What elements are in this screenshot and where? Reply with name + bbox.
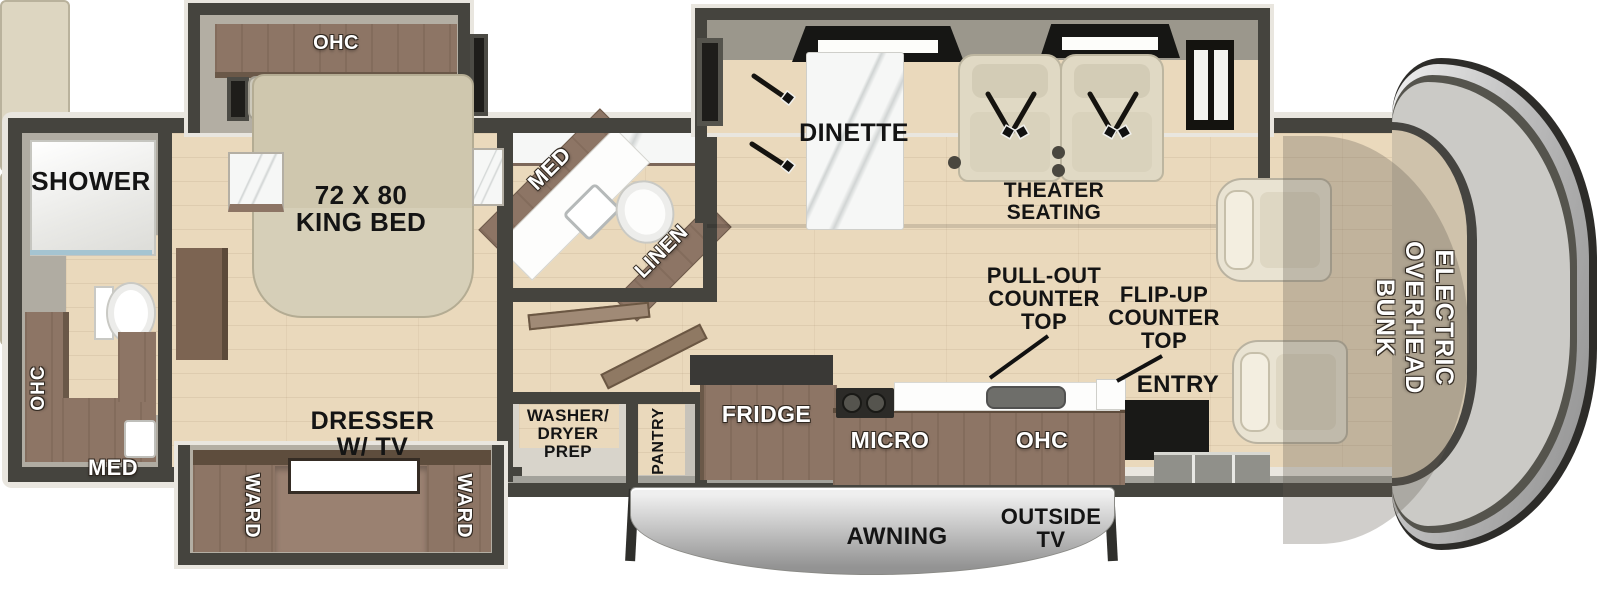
awning-label: AWNING <box>797 524 997 549</box>
ward-right-label: WARD <box>444 451 474 561</box>
king-bed-label: 72 X 80 KING BED <box>252 182 470 237</box>
fridge-label: FRIDGE <box>700 402 833 426</box>
washer-dryer-label: WASHER/ DRYER PREP <box>509 407 627 461</box>
rear-ohc-label: OHC <box>29 333 59 443</box>
electric-overhead-bunk-label: ELECTRIC OVERHEAD BUNK <box>1366 211 1458 425</box>
theater-seating-label: THEATER SEATING <box>973 180 1135 224</box>
rv-floorplan: SHOWER OHC MED OHC 72 X 80 KING BED DRES… <box>0 0 1600 602</box>
kitchen-ohc-label: OHC <box>990 428 1094 452</box>
entry-label: ENTRY <box>1126 372 1230 397</box>
ward-left-label: WARD <box>232 451 262 561</box>
shower-label: SHOWER <box>30 168 152 195</box>
flip-up-counter-label: FLIP-UP COUNTER TOP <box>1102 283 1226 352</box>
rear-med-label: MED <box>70 456 156 479</box>
bedroom-ohc-label: OHC <box>215 33 457 54</box>
dinette-label: DINETTE <box>783 120 925 146</box>
dresser-label: DRESSER W/ TV <box>280 408 465 461</box>
micro-label: MICRO <box>838 428 942 452</box>
pantry-label: PANTRY <box>651 386 679 496</box>
pull-out-counter-label: PULL-OUT COUNTER TOP <box>978 264 1110 333</box>
outside-tv-label: OUTSIDE TV <box>988 505 1114 551</box>
